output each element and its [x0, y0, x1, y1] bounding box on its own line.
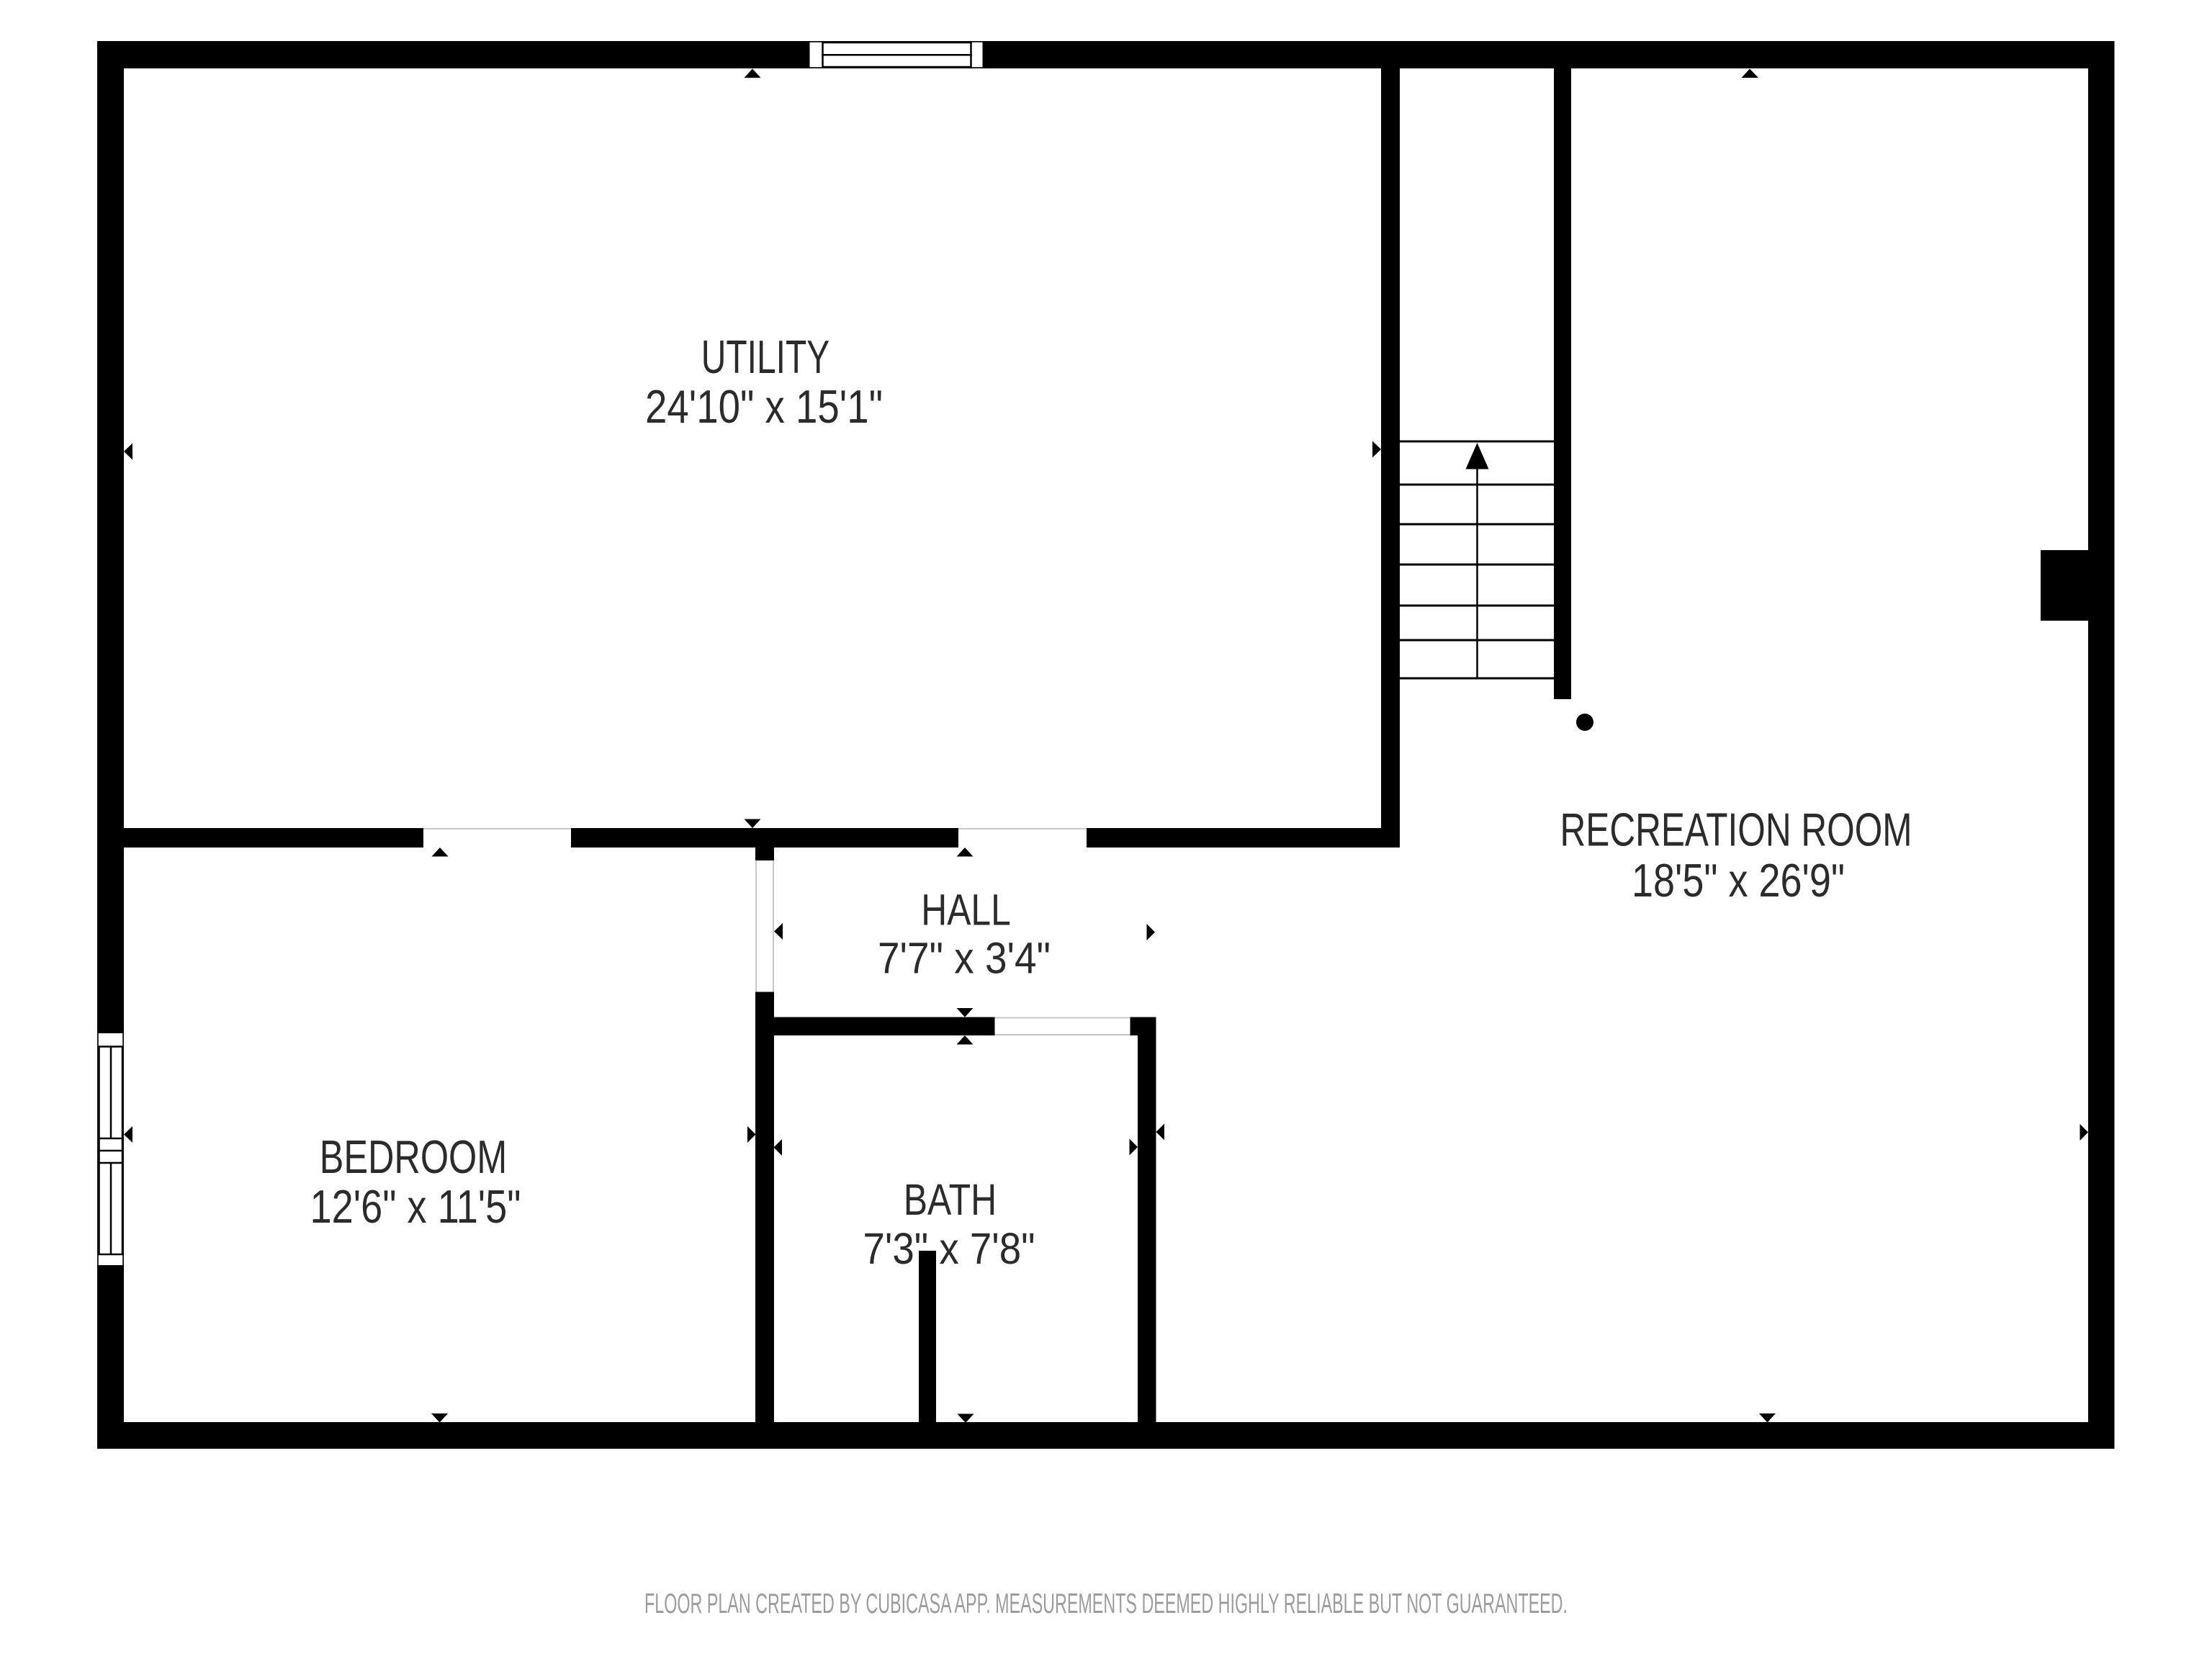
svg-text:UTILITY: UTILITY	[701, 331, 830, 383]
svg-text:RECREATION ROOM: RECREATION ROOM	[1560, 804, 1912, 856]
svg-text:24'10" x 15'1": 24'10" x 15'1"	[645, 380, 883, 433]
svg-text:HALL: HALL	[921, 886, 1011, 935]
svg-text:12'6" x 11'5": 12'6" x 11'5"	[310, 1180, 521, 1233]
svg-text:BEDROOM: BEDROOM	[320, 1130, 508, 1183]
svg-text:7'7" x 3'4": 7'7" x 3'4"	[878, 934, 1051, 983]
svg-text:7'3" x 7'8": 7'3" x 7'8"	[863, 1224, 1035, 1273]
svg-text:FLOOR PLAN CREATED BY CUBICASA: FLOOR PLAN CREATED BY CUBICASA APP. MEAS…	[644, 1588, 1568, 1619]
svg-text:18'5" x 26'9": 18'5" x 26'9"	[1632, 854, 1845, 907]
svg-text:BATH: BATH	[904, 1175, 997, 1224]
